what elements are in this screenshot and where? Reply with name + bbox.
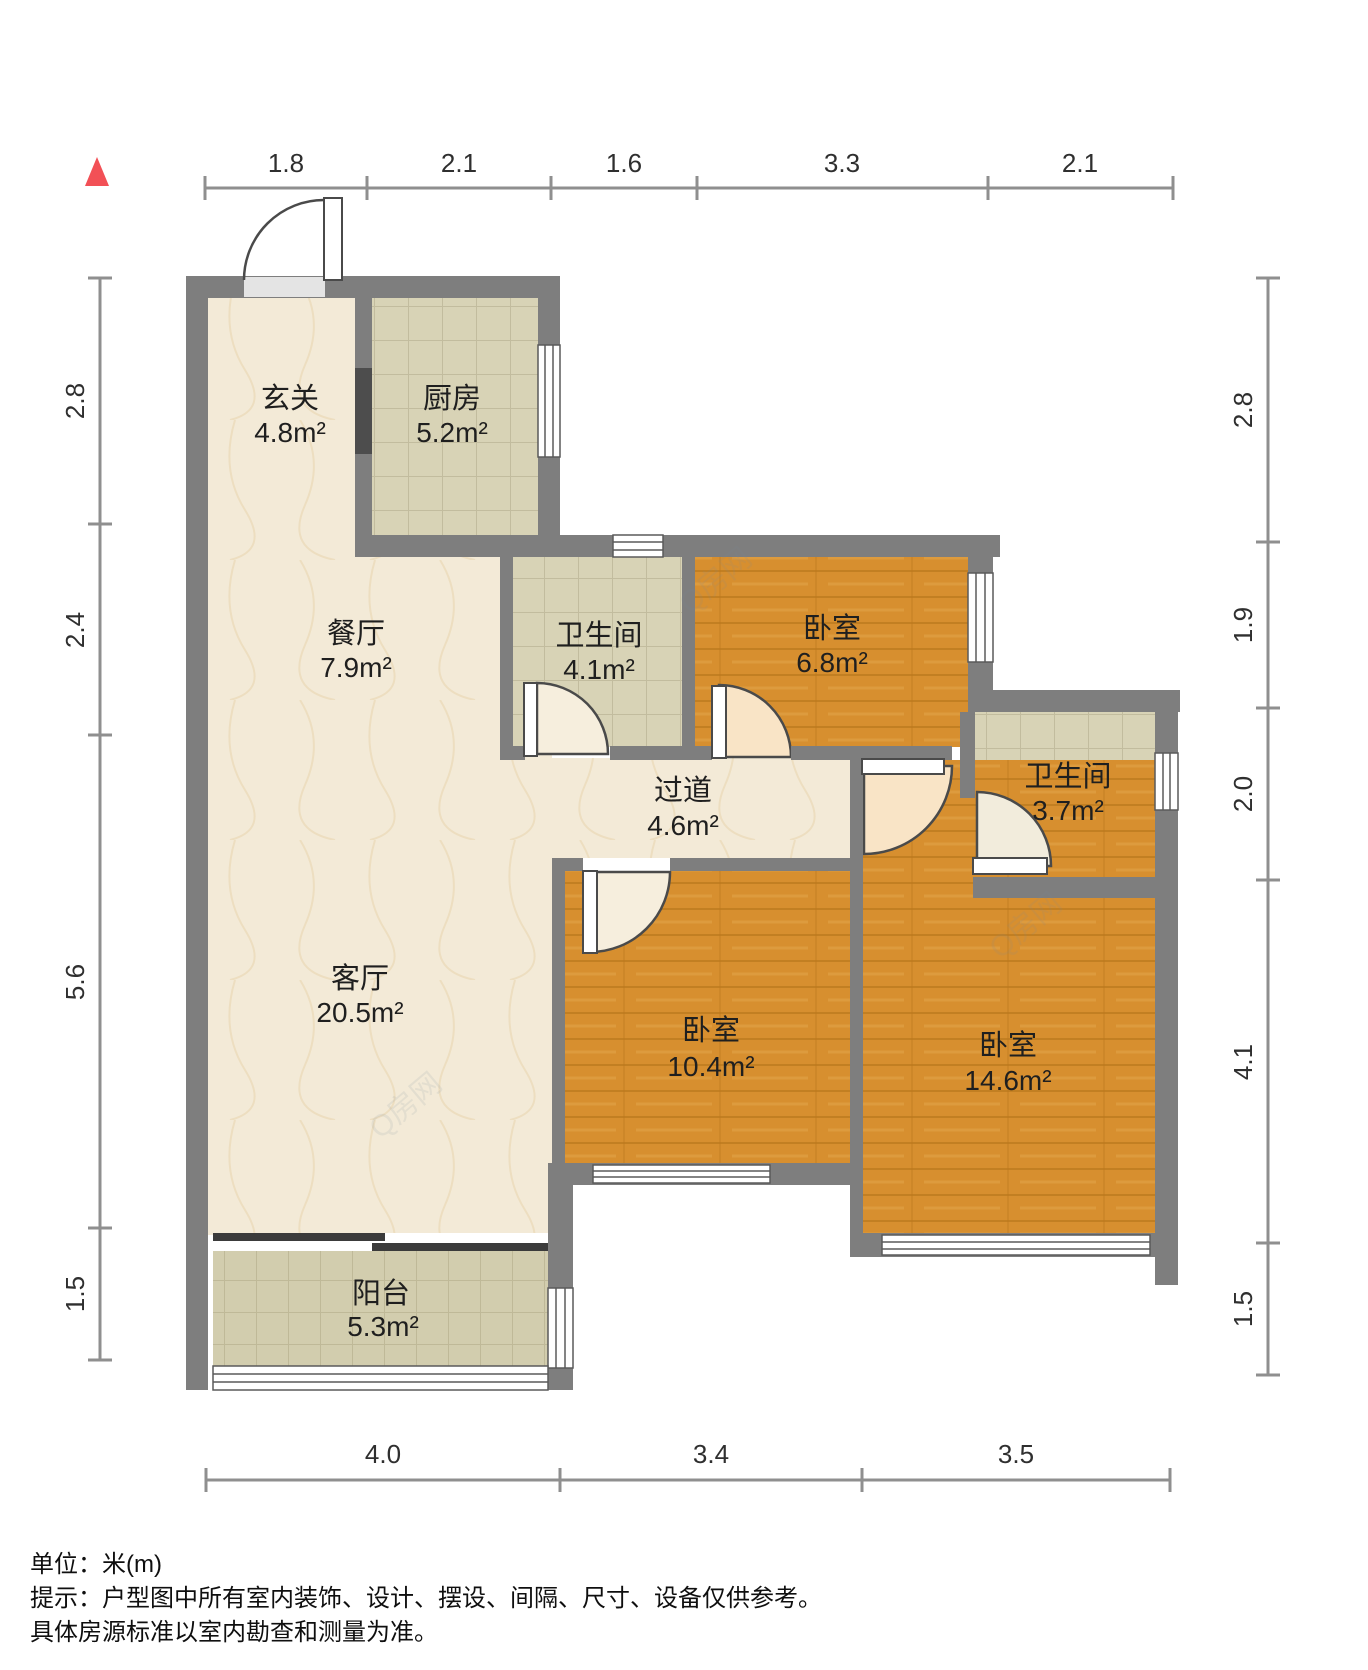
footer-tip-line2: 具体房源标准以室内勘查和测量为准。 xyxy=(30,1619,438,1646)
dim-right-3: 2.0 xyxy=(1228,776,1258,812)
wall xyxy=(186,276,560,298)
wall xyxy=(670,858,850,871)
room-area-balcony: 5.3m² xyxy=(347,1311,419,1342)
room-label-bath1: 卫生间 xyxy=(555,619,642,652)
bath1-window xyxy=(613,535,663,557)
wall xyxy=(500,746,525,760)
room-label-bedroom3: 卧室 xyxy=(979,1029,1037,1062)
balcony-railing xyxy=(213,1366,548,1390)
dim-right-5: 1.5 xyxy=(1228,1291,1258,1327)
wall xyxy=(960,712,975,798)
room-label-bedroom1: 卧室 xyxy=(803,612,861,645)
wall xyxy=(850,758,863,1233)
footer-unit-label: 单位：米(m) xyxy=(30,1551,162,1578)
dim-top-5: 2.1 xyxy=(1062,148,1098,178)
kitchen-window xyxy=(538,345,560,457)
wall xyxy=(968,690,1180,712)
sliding-door-panel xyxy=(213,1233,385,1241)
bath2-door-leaf xyxy=(973,858,1047,874)
floor-plan-page: Q房网 Q房网 Q房网 玄关 4.8m² 厨房 5.2m² 餐厅 7.9m² 卫… xyxy=(0,0,1368,1670)
room-label-living: 客厅 xyxy=(331,962,389,995)
bedroom3-window xyxy=(882,1235,1150,1255)
room-area-kitchen: 5.2m² xyxy=(416,417,488,448)
room-label-dining: 餐厅 xyxy=(327,617,385,650)
hallway-floor xyxy=(513,758,852,858)
room-area-entry: 4.8m² xyxy=(254,417,326,448)
wall xyxy=(791,746,952,760)
dim-right-1: 2.8 xyxy=(1228,392,1258,428)
room-area-dining: 7.9m² xyxy=(320,652,392,683)
wall xyxy=(500,557,513,760)
entry-door-arc xyxy=(244,200,324,280)
room-area-hallway: 4.6m² xyxy=(647,810,719,841)
footer-tip-line1: 提示：户型图中所有室内装饰、设计、摆设、间隔、尺寸、设备仅供参考。 xyxy=(30,1585,822,1612)
dim-top-2: 2.1 xyxy=(441,148,477,178)
dim-left-4: 1.5 xyxy=(60,1276,90,1312)
dim-top-4: 3.3 xyxy=(824,148,860,178)
sliding-door-panel xyxy=(372,1243,548,1251)
floor-plan-svg: Q房网 Q房网 Q房网 玄关 4.8m² 厨房 5.2m² 餐厅 7.9m² 卫… xyxy=(0,0,1368,1670)
room-label-kitchen: 厨房 xyxy=(423,382,481,415)
balcony-window xyxy=(548,1288,573,1368)
wall xyxy=(552,858,565,1185)
bath2-window xyxy=(1155,753,1178,810)
room-label-bedroom2: 卧室 xyxy=(682,1014,740,1047)
wall xyxy=(610,746,712,760)
dim-top-1: 1.8 xyxy=(268,148,304,178)
room-label-bath2: 卫生间 xyxy=(1024,760,1111,793)
room-label-hallway: 过道 xyxy=(654,774,712,807)
dimension-bottom: 4.0 3.4 3.5 xyxy=(206,1439,1170,1492)
entry-threshold xyxy=(244,277,325,297)
dimension-right: 2.8 1.9 2.0 4.1 1.5 xyxy=(1228,278,1280,1375)
room-area-bedroom2: 10.4m² xyxy=(667,1051,754,1082)
room-label-entry: 玄关 xyxy=(261,382,319,415)
dim-left-3: 5.6 xyxy=(60,964,90,1000)
bedroom1-window xyxy=(968,573,993,662)
wall xyxy=(186,276,208,1390)
bedroom1-door-leaf xyxy=(712,686,726,758)
dim-right-4: 4.1 xyxy=(1228,1044,1258,1080)
room-area-bedroom1: 6.8m² xyxy=(796,647,868,678)
dim-left-2: 2.4 xyxy=(60,612,90,648)
dim-left-1: 2.8 xyxy=(60,383,90,419)
wall xyxy=(973,877,1178,898)
dim-bottom-3: 3.5 xyxy=(998,1439,1034,1469)
entry-door-leaf xyxy=(324,198,342,280)
footer: 单位：米(m) 提示：户型图中所有室内装饰、设计、摆设、间隔、尺寸、设备仅供参考… xyxy=(30,1551,822,1646)
wall xyxy=(355,535,1000,557)
bath1-door-leaf xyxy=(524,683,537,756)
bedroom2-window xyxy=(593,1165,770,1183)
kitchen-opening xyxy=(355,368,372,454)
room-area-bedroom3: 14.6m² xyxy=(964,1065,1051,1096)
room-area-bath2: 3.7m² xyxy=(1032,795,1104,826)
dim-top-3: 1.6 xyxy=(606,148,642,178)
dimension-top: 1.8 2.1 1.6 3.3 2.1 xyxy=(205,148,1173,200)
balcony-sliding-door xyxy=(213,1233,548,1251)
north-icon xyxy=(85,157,109,186)
dim-bottom-2: 3.4 xyxy=(693,1439,729,1469)
bedroom2-door-leaf xyxy=(583,871,597,953)
room-area-living: 20.5m² xyxy=(316,997,403,1028)
bedroom3-door-leaf xyxy=(862,759,944,774)
dim-right-2: 1.9 xyxy=(1228,607,1258,643)
room-area-bath1: 4.1m² xyxy=(563,654,635,685)
dimension-left: 2.8 2.4 5.6 1.5 xyxy=(60,278,112,1360)
room-label-balcony: 阳台 xyxy=(352,1277,410,1310)
dim-bottom-1: 4.0 xyxy=(365,1439,401,1469)
